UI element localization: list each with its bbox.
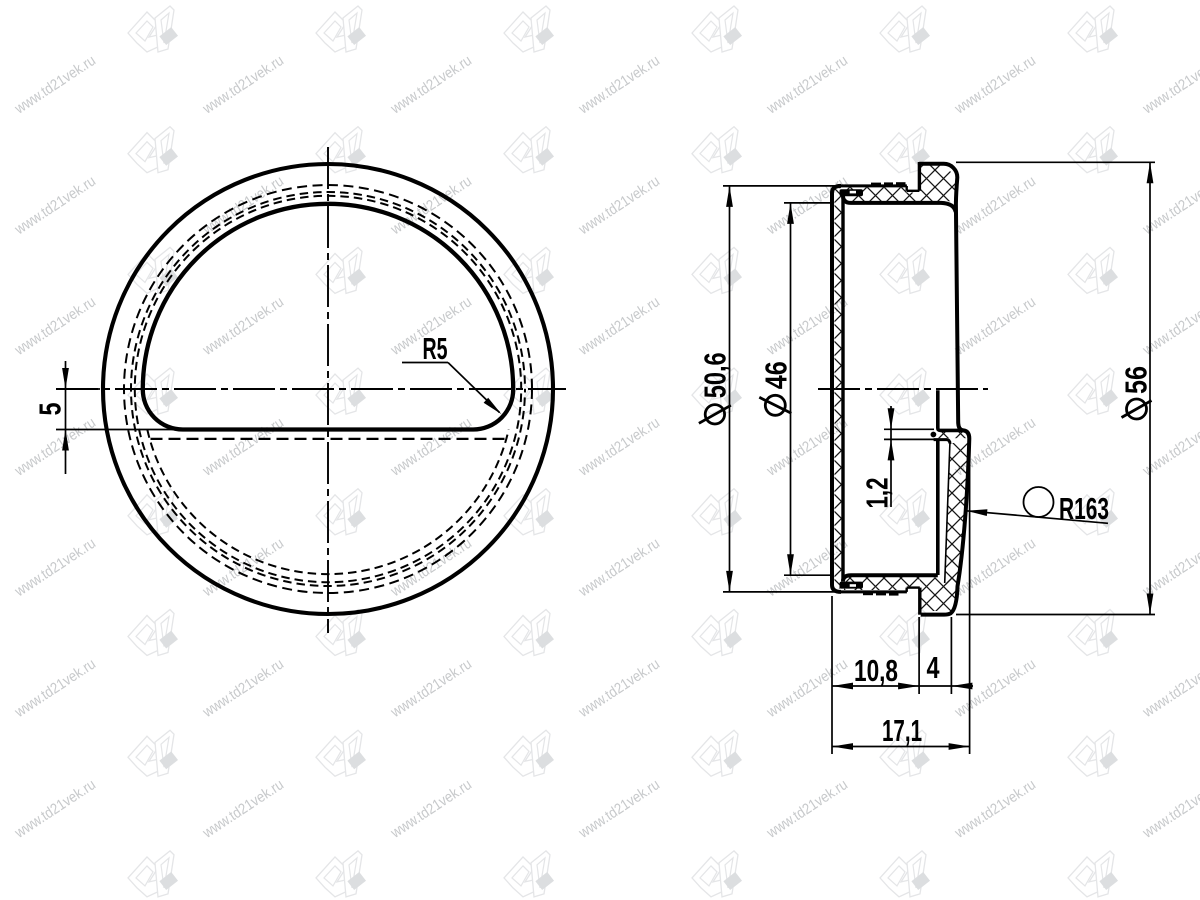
svg-text:56: 56 <box>1120 366 1154 394</box>
svg-text:17,1: 17,1 <box>882 714 922 748</box>
svg-text:R163: R163 <box>1059 492 1109 526</box>
svg-text:10,8: 10,8 <box>854 654 898 688</box>
svg-text:5: 5 <box>34 402 68 415</box>
svg-text:R5: R5 <box>423 332 448 366</box>
svg-text:4: 4 <box>927 651 940 685</box>
svg-text:46: 46 <box>760 361 794 389</box>
svg-text:50,6: 50,6 <box>699 352 733 398</box>
svg-text:1,2: 1,2 <box>861 478 895 509</box>
